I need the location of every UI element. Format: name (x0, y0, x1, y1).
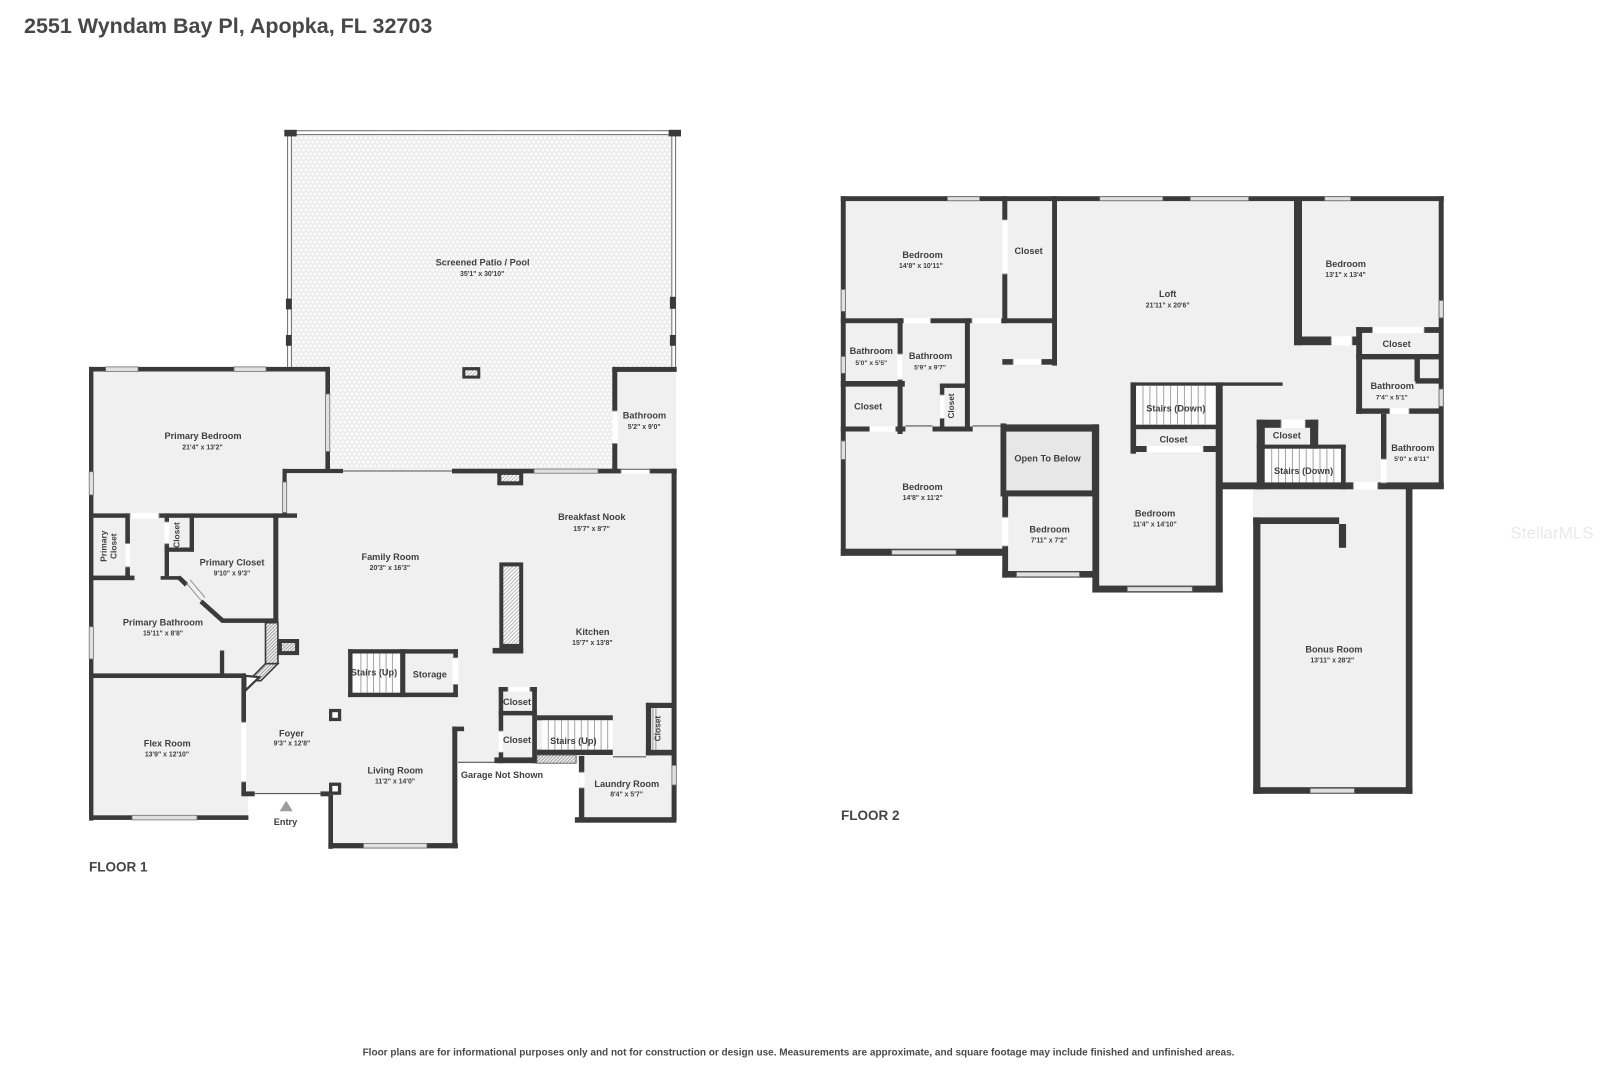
svg-text:Closet: Closet (947, 393, 956, 418)
svg-text:2551 Wyndam Bay Pl, Apopka, FL: 2551 Wyndam Bay Pl, Apopka, FL 32703 (24, 14, 432, 38)
svg-text:Closet: Closet (1159, 434, 1187, 444)
svg-text:Bedroom: Bedroom (1135, 508, 1175, 518)
svg-text:Primary Bedroom: Primary Bedroom (164, 431, 241, 441)
svg-text:Stairs (Down): Stairs (Down) (1146, 403, 1205, 413)
svg-text:Flex Room: Flex Room (144, 739, 191, 749)
svg-text:35'1" x 30'10": 35'1" x 30'10" (460, 271, 504, 278)
svg-text:Closet: Closet (172, 522, 182, 548)
svg-text:13'11" x 28'2": 13'11" x 28'2" (1310, 657, 1354, 664)
svg-text:Closet: Closet (503, 735, 531, 745)
svg-text:Primary Bathroom: Primary Bathroom (123, 618, 203, 628)
svg-text:8'4" x 5'7": 8'4" x 5'7" (610, 792, 643, 799)
svg-text:5'0" x 5'5": 5'0" x 5'5" (855, 360, 887, 367)
svg-text:Screened Patio / Pool: Screened Patio / Pool (436, 257, 530, 267)
svg-text:Closet: Closet (653, 716, 663, 742)
svg-text:11'4" x 14'10": 11'4" x 14'10" (1133, 521, 1177, 528)
svg-text:PrimaryCloset: PrimaryCloset (99, 530, 119, 562)
svg-text:21'4" x 13'2": 21'4" x 13'2" (182, 445, 222, 452)
svg-text:7'4" x 5'1": 7'4" x 5'1" (1376, 394, 1408, 401)
svg-text:StellarMLS: StellarMLS (1510, 524, 1593, 543)
svg-text:13'1" x 13'4": 13'1" x 13'4" (1325, 272, 1365, 279)
svg-text:15'7" x 8'7": 15'7" x 8'7" (573, 526, 610, 533)
svg-text:14'8" x 10'11": 14'8" x 10'11" (899, 263, 943, 270)
svg-text:Bathroom: Bathroom (850, 346, 893, 356)
svg-text:14'8" x 11'2": 14'8" x 11'2" (903, 495, 943, 502)
svg-text:Bonus Room: Bonus Room (1305, 644, 1362, 654)
svg-text:13'9" x 12'10": 13'9" x 12'10" (145, 751, 189, 758)
svg-text:Closet: Closet (854, 401, 882, 411)
svg-text:Bathroom: Bathroom (1371, 381, 1414, 391)
svg-text:Family Room: Family Room (361, 552, 419, 562)
svg-text:Laundry Room: Laundry Room (594, 779, 659, 789)
svg-text:Foyer: Foyer (279, 729, 304, 739)
svg-text:Bedroom: Bedroom (1326, 259, 1366, 269)
svg-text:Closet: Closet (1015, 246, 1043, 256)
svg-text:Bathroom: Bathroom (623, 411, 666, 421)
svg-text:Open To Below: Open To Below (1014, 454, 1081, 464)
svg-text:Storage: Storage (413, 670, 447, 680)
svg-text:FLOOR 2: FLOOR 2 (841, 808, 900, 823)
svg-text:9'3" x 12'8": 9'3" x 12'8" (274, 740, 311, 747)
svg-text:Bedroom: Bedroom (902, 250, 942, 260)
svg-text:Kitchen: Kitchen (576, 627, 610, 637)
svg-text:Garage Not Shown: Garage Not Shown (461, 770, 544, 780)
svg-text:7'11" x 7'2": 7'11" x 7'2" (1031, 537, 1067, 544)
svg-text:Stairs (Down): Stairs (Down) (1274, 466, 1333, 476)
svg-text:Stairs (Up): Stairs (Up) (351, 668, 397, 678)
svg-text:5'0" x 6'11": 5'0" x 6'11" (1394, 456, 1429, 463)
svg-text:9'10" x 9'3": 9'10" x 9'3" (214, 570, 251, 577)
svg-text:5'2" x 9'0": 5'2" x 9'0" (628, 424, 661, 431)
svg-text:Breakfast Nook: Breakfast Nook (558, 512, 626, 522)
svg-text:Bathroom: Bathroom (1391, 443, 1434, 453)
svg-text:Closet: Closet (1383, 339, 1411, 349)
svg-text:11'2" x 14'0": 11'2" x 14'0" (375, 778, 415, 785)
svg-text:Floor plans are for informatio: Floor plans are for informational purpos… (363, 1048, 1235, 1059)
svg-text:20'3" x 16'3": 20'3" x 16'3" (370, 565, 410, 572)
svg-text:21'11" x 20'6": 21'11" x 20'6" (1146, 303, 1190, 310)
svg-text:Closet: Closet (503, 697, 531, 707)
svg-text:Living Room: Living Room (367, 766, 423, 776)
svg-text:Entry: Entry (274, 817, 298, 827)
svg-text:Bedroom: Bedroom (1029, 525, 1069, 535)
svg-text:Bedroom: Bedroom (902, 482, 942, 492)
svg-text:15'11" x 8'8": 15'11" x 8'8" (143, 630, 183, 637)
svg-text:5'9" x 9'7": 5'9" x 9'7" (914, 365, 946, 372)
svg-text:Stairs (Up): Stairs (Up) (550, 736, 596, 746)
svg-text:FLOOR 1: FLOOR 1 (89, 860, 148, 875)
svg-text:Primary Closet: Primary Closet (200, 557, 265, 567)
svg-text:Loft: Loft (1159, 289, 1176, 299)
svg-text:Closet: Closet (1273, 430, 1301, 440)
svg-text:Bathroom: Bathroom (909, 351, 952, 361)
svg-text:15'7" x 13'8": 15'7" x 13'8" (572, 640, 612, 647)
